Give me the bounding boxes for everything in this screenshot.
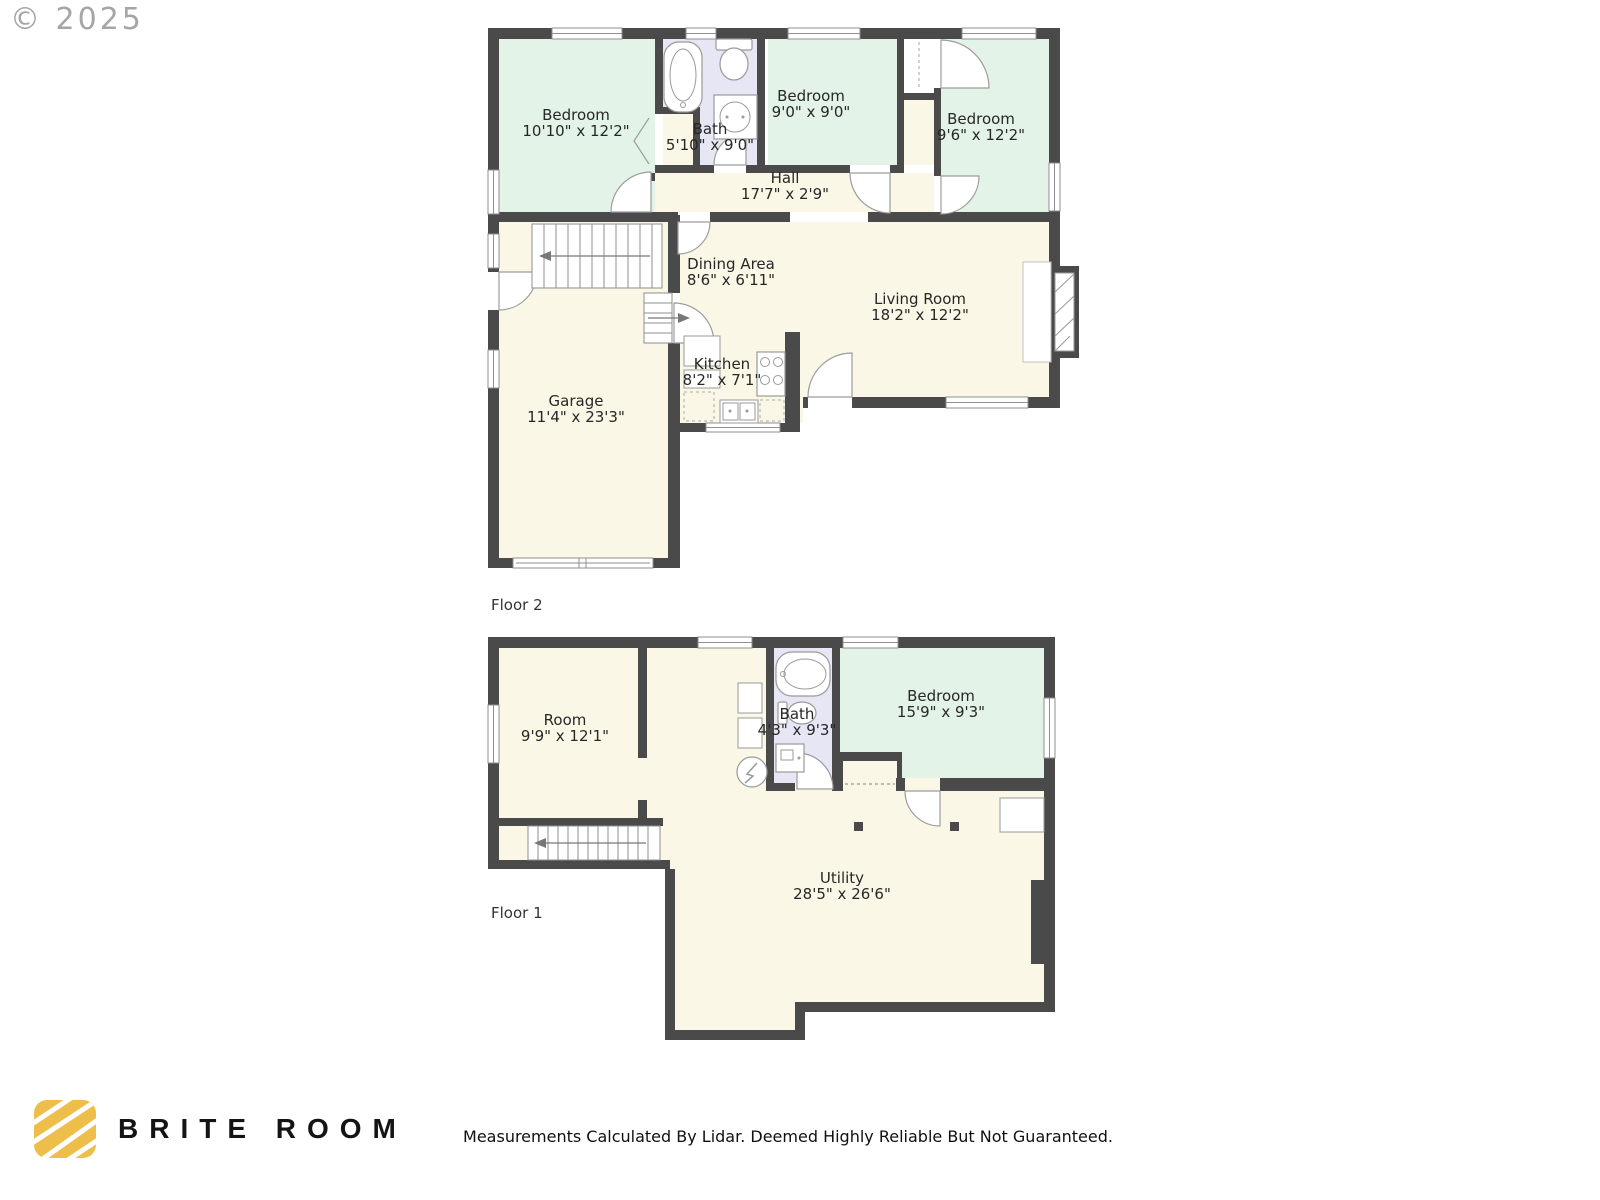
bathtub-icon	[664, 42, 702, 112]
brite-room-logo-icon	[34, 1100, 96, 1158]
room-dims: 11'4" x 23'3"	[527, 409, 625, 425]
room-dims: 8'6" x 6'11"	[687, 272, 775, 288]
room-dims: 9'6" x 12'2"	[937, 127, 1025, 143]
stairs-upper-icon	[532, 224, 662, 288]
kitchen-sink-icon	[720, 400, 758, 423]
room-label-floor1-bath: Bath 4'3" x 9'3"	[758, 706, 837, 738]
disclaimer-text: Measurements Calculated By Lidar. Deemed…	[463, 1127, 1113, 1146]
room-name: Hall	[741, 170, 829, 186]
bathtub-floor1-icon	[776, 652, 830, 696]
room-label-floor1-room: Room 9'9" x 12'1"	[521, 712, 609, 744]
room-name: Room	[521, 712, 609, 728]
brand-name: BRITE ROOM	[118, 1113, 407, 1145]
sink-floor1-icon	[776, 744, 804, 772]
room-dims: 5'10" x 9'0"	[666, 137, 754, 153]
water-heater-icon	[737, 757, 767, 787]
room-label-floor2-bath: Bath 5'10" x 9'0"	[666, 121, 754, 153]
room-name: Bedroom	[522, 107, 629, 123]
room-label-floor2-bedroom3: Bedroom 9'6" x 12'2"	[937, 111, 1025, 143]
floor2-caption: Floor 2	[491, 596, 543, 614]
room-dims: 17'7" x 2'9"	[741, 186, 829, 202]
room-name: Bedroom	[897, 688, 985, 704]
room-name: Bedroom	[937, 111, 1025, 127]
room-dims: 15'9" x 9'3"	[897, 704, 985, 720]
room-label-floor2-garage: Garage 11'4" x 23'3"	[527, 393, 625, 425]
room-dims: 28'5" x 26'6"	[793, 886, 891, 902]
room-name: Bath	[666, 121, 754, 137]
room-label-floor2-living: Living Room 18'2" x 12'2"	[871, 291, 969, 323]
room-name: Kitchen	[683, 356, 762, 372]
stairs-floor1-icon	[528, 826, 660, 860]
floor1-caption: Floor 1	[491, 904, 543, 922]
room-label-floor2-kitchen: Kitchen 8'2" x 7'1"	[683, 356, 762, 388]
room-name: Garage	[527, 393, 625, 409]
room-name: Dining Area	[687, 256, 775, 272]
room-name: Bedroom	[772, 88, 851, 104]
fireplace-icon	[1023, 262, 1074, 362]
room-label-floor2-hall: Hall 17'7" x 2'9"	[741, 170, 829, 202]
room-label-floor1-bedroom: Bedroom 15'9" x 9'3"	[897, 688, 985, 720]
floor-plan-page: © 2025	[0, 0, 1600, 1200]
room-dims: 18'2" x 12'2"	[871, 307, 969, 323]
brand-footer: BRITE ROOM	[34, 1100, 407, 1158]
room-dims: 10'10" x 12'2"	[522, 123, 629, 139]
room-label-floor2-bedroom2: Bedroom 9'0" x 9'0"	[772, 88, 851, 120]
room-dims: 9'0" x 9'0"	[772, 104, 851, 120]
garage-door	[513, 558, 653, 568]
room-name: Utility	[793, 870, 891, 886]
room-name: Bath	[758, 706, 837, 722]
room-dims: 4'3" x 9'3"	[758, 722, 837, 738]
room-label-floor2-bedroom1: Bedroom 10'10" x 12'2"	[522, 107, 629, 139]
storage-box	[1000, 798, 1044, 832]
room-name: Living Room	[871, 291, 969, 307]
room-dims: 8'2" x 7'1"	[683, 372, 762, 388]
room-label-floor2-dining: Dining Area 8'6" x 6'11"	[687, 256, 775, 288]
room-label-floor1-utility: Utility 28'5" x 26'6"	[793, 870, 891, 902]
room-dims: 9'9" x 12'1"	[521, 728, 609, 744]
